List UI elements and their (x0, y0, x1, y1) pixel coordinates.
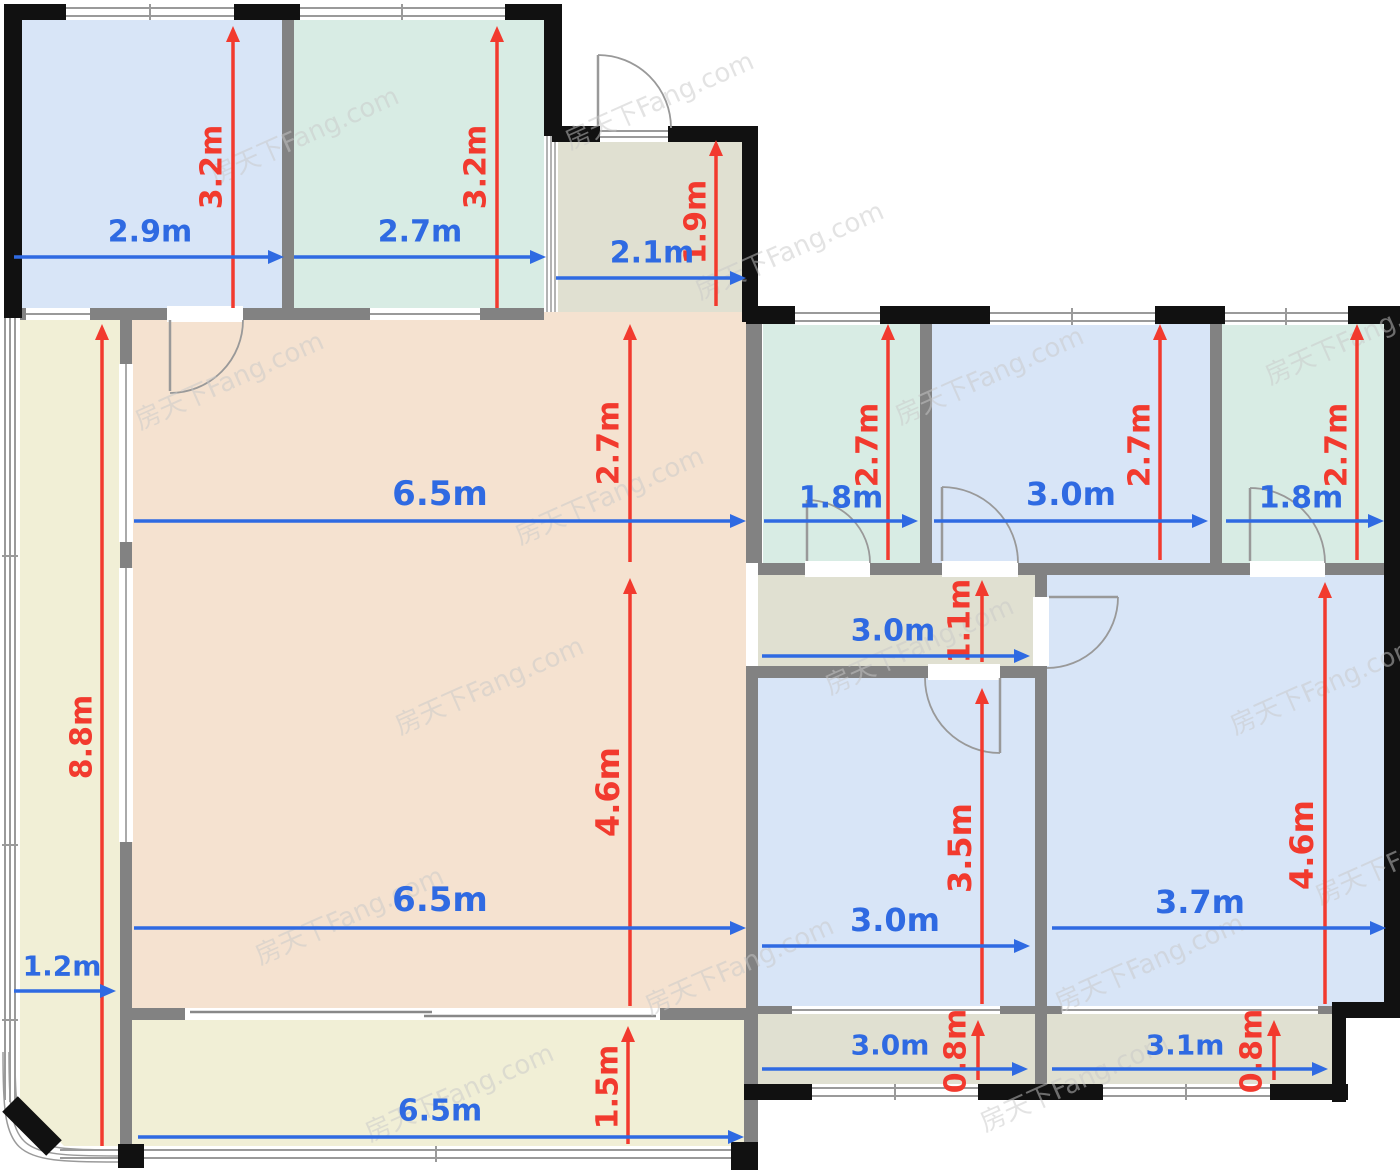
window-top-1 (66, 4, 234, 20)
dimension-label: 2.7m (378, 215, 462, 250)
dimension-label: 8.8m (65, 695, 100, 779)
window-entry-divider (544, 134, 558, 312)
dimension-label: 2.9m (108, 215, 192, 250)
dimension-label: 1.1m (943, 579, 978, 663)
dimension-label: 3.2m (459, 125, 494, 209)
dimension-label: 3.0m (851, 614, 935, 649)
dimension-label: 2.7m (592, 401, 627, 485)
dimension-label: 2.1m (610, 236, 694, 271)
floor-plan-page: 房天下Fang.com房天下Fang.com房天下Fang.com房天下Fang… (0, 0, 1400, 1170)
dimension-label: 3.0m (851, 1029, 930, 1062)
dimension-label: 2.7m (1123, 403, 1158, 487)
window-rightwing-1 (795, 308, 880, 325)
dimension-label: 6.5m (398, 1094, 482, 1129)
floor-plan-canvas: 房天下Fang.com房天下Fang.com房天下Fang.com房天下Fang… (0, 0, 1400, 1170)
door-gap-teal2 (1250, 561, 1325, 577)
dimension-label: 3.2m (195, 125, 230, 209)
dimension-label: 4.6m (1283, 800, 1321, 890)
window-bottom-balcony (60, 1146, 733, 1162)
room-bedroom-a (758, 678, 1035, 1010)
window-teal-bottom (370, 308, 480, 320)
window-living-left-1 (119, 364, 133, 542)
dimension-label: 2.7m (851, 403, 886, 487)
dimension-label: 1.8m (1259, 481, 1343, 516)
dimension-label: 0.8m (939, 1009, 974, 1093)
dimension-label: 4.6m (589, 747, 627, 837)
dimension-label: 6.5m (392, 474, 488, 514)
dimension-label: 2.7m (1320, 403, 1355, 487)
sliding-door-living (185, 1008, 660, 1020)
door-gap-teal1 (805, 561, 870, 577)
window-bedroom-bottom (26, 308, 90, 320)
door-gap-bedroom (167, 306, 243, 322)
window-rightwing-3 (1225, 308, 1348, 325)
dimension-label: 6.5m (392, 880, 488, 920)
window-left-wall (2, 318, 18, 1104)
door-gap-blue-mid (942, 561, 1018, 577)
dimension-label: 1.8m (799, 481, 883, 516)
dimension-label: 3.0m (850, 901, 940, 939)
door-gap-bedroom-a (928, 664, 1000, 680)
room-teal-right-1 (763, 324, 920, 563)
dimension-label: 3.7m (1155, 883, 1245, 921)
dimension-label: 1.2m (23, 950, 102, 983)
dimension-label: 1.5m (591, 1045, 626, 1129)
window-top-2 (300, 4, 505, 20)
door-gap-bedroom-b (1033, 597, 1049, 666)
dimension-label: 3.1m (1146, 1029, 1225, 1062)
sliding-door-balcony-b (1062, 1006, 1318, 1014)
room-blue-mid (932, 324, 1210, 563)
window-living-left-2 (119, 568, 133, 842)
dimension-label: 0.8m (1235, 1009, 1270, 1093)
dimension-label: 3.5m (941, 803, 979, 893)
dimension-label: 3.0m (1026, 475, 1116, 513)
room-teal-top (294, 20, 544, 308)
